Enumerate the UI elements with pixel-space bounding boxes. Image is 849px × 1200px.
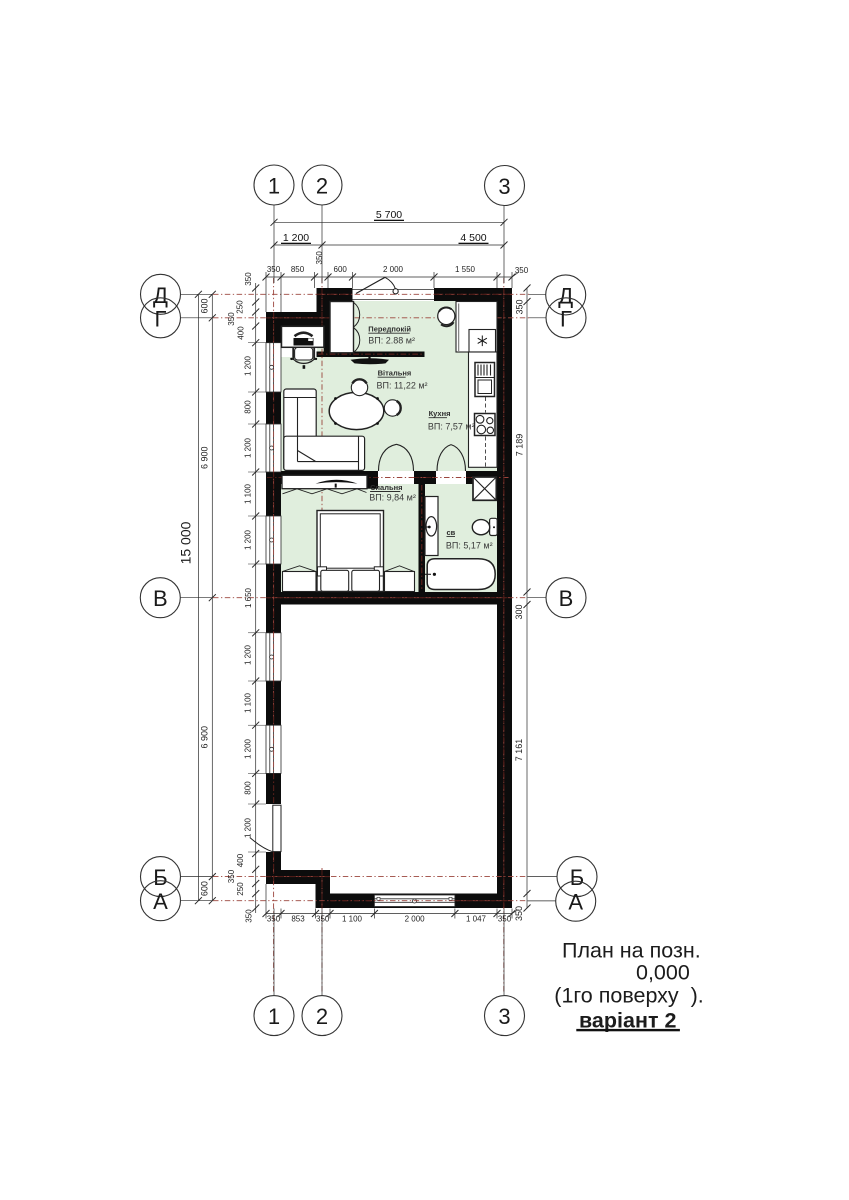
svg-text:Д: Д — [558, 283, 573, 308]
svg-text:ВП: 2.88 м²: ВП: 2.88 м² — [368, 336, 415, 346]
svg-text:2: 2 — [316, 174, 328, 199]
svg-text:6 900: 6 900 — [200, 446, 210, 469]
svg-text:350: 350 — [316, 915, 330, 924]
svg-text:св: св — [447, 528, 456, 537]
svg-text:600: 600 — [200, 298, 210, 313]
svg-text:ВП: 11,22 м²: ВП: 11,22 м² — [377, 380, 428, 390]
svg-text:1 200: 1 200 — [244, 644, 253, 665]
svg-text:(1го поверху ).: (1го поверху ). — [554, 984, 703, 1008]
svg-text:0,000: 0,000 — [636, 960, 690, 984]
svg-text:350: 350 — [514, 906, 524, 921]
svg-text:250: 250 — [236, 882, 245, 896]
svg-text:7 189: 7 189 — [514, 434, 524, 457]
svg-text:ВП: 9,84 м²: ВП: 9,84 м² — [369, 493, 416, 503]
svg-text:Б: Б — [153, 865, 167, 890]
svg-text:А: А — [153, 889, 168, 914]
svg-text:4 500: 4 500 — [460, 232, 486, 244]
svg-text:6 900: 6 900 — [200, 726, 210, 749]
svg-text:853: 853 — [291, 915, 305, 924]
svg-text:800: 800 — [244, 400, 253, 414]
svg-text:План на позн.: План на позн. — [562, 938, 701, 962]
svg-text:1 650: 1 650 — [244, 587, 253, 608]
svg-text:В: В — [559, 586, 574, 611]
svg-text:ВП: 7,57 м²: ВП: 7,57 м² — [428, 422, 475, 432]
svg-text:400: 400 — [236, 853, 245, 867]
svg-text:300: 300 — [514, 604, 524, 619]
svg-text:1 200: 1 200 — [244, 355, 253, 376]
svg-text:350: 350 — [227, 312, 236, 326]
svg-text:3: 3 — [498, 174, 510, 199]
svg-text:600: 600 — [334, 265, 348, 274]
svg-text:350: 350 — [267, 265, 281, 274]
svg-text:Б: Б — [570, 865, 584, 890]
svg-text:2 000: 2 000 — [405, 915, 426, 924]
svg-text:5 700: 5 700 — [376, 209, 402, 221]
svg-text:350: 350 — [498, 915, 512, 924]
svg-text:2: 2 — [316, 1004, 328, 1029]
svg-text:350: 350 — [515, 266, 529, 275]
svg-text:400: 400 — [237, 326, 246, 340]
svg-text:Г: Г — [560, 306, 572, 331]
svg-text:1 200: 1 200 — [283, 232, 309, 244]
svg-text:Спальня: Спальня — [370, 483, 402, 492]
svg-text:800: 800 — [244, 781, 253, 795]
svg-text:250: 250 — [236, 300, 245, 314]
svg-text:В: В — [153, 586, 168, 611]
svg-text:1 200: 1 200 — [244, 817, 253, 838]
svg-text:2 000: 2 000 — [383, 265, 404, 274]
svg-text:Г: Г — [155, 306, 167, 331]
svg-text:1: 1 — [268, 174, 280, 199]
svg-text:1 550: 1 550 — [455, 265, 476, 274]
svg-text:850: 850 — [291, 265, 305, 274]
svg-text:600: 600 — [200, 881, 210, 896]
svg-text:1 100: 1 100 — [244, 692, 253, 713]
svg-text:350: 350 — [315, 251, 324, 265]
svg-text:1 200: 1 200 — [244, 529, 253, 550]
svg-text:3: 3 — [498, 1004, 510, 1029]
svg-text:1 047: 1 047 — [466, 915, 487, 924]
svg-text:1: 1 — [268, 1004, 280, 1029]
svg-text:350: 350 — [245, 909, 254, 923]
svg-text:1 100: 1 100 — [342, 915, 363, 924]
svg-text:350: 350 — [515, 299, 525, 314]
svg-text:ВП: 5,17 м²: ВП: 5,17 м² — [446, 541, 493, 551]
svg-text:Кухня: Кухня — [429, 409, 451, 418]
svg-text:варіант 2: варіант 2 — [579, 1008, 676, 1032]
svg-text:Передпокій: Передпокій — [368, 325, 411, 334]
svg-text:350: 350 — [227, 869, 236, 883]
svg-text:15 000: 15 000 — [178, 521, 194, 564]
svg-text:7 161: 7 161 — [514, 739, 524, 762]
svg-text:350: 350 — [267, 915, 281, 924]
svg-text:Вітальня: Вітальня — [378, 369, 412, 378]
svg-text:1 200: 1 200 — [244, 437, 253, 458]
svg-text:Д: Д — [153, 283, 168, 308]
svg-text:А: А — [568, 890, 583, 915]
svg-text:1 200: 1 200 — [244, 738, 253, 759]
svg-text:350: 350 — [244, 272, 253, 286]
svg-text:1 100: 1 100 — [244, 483, 253, 504]
